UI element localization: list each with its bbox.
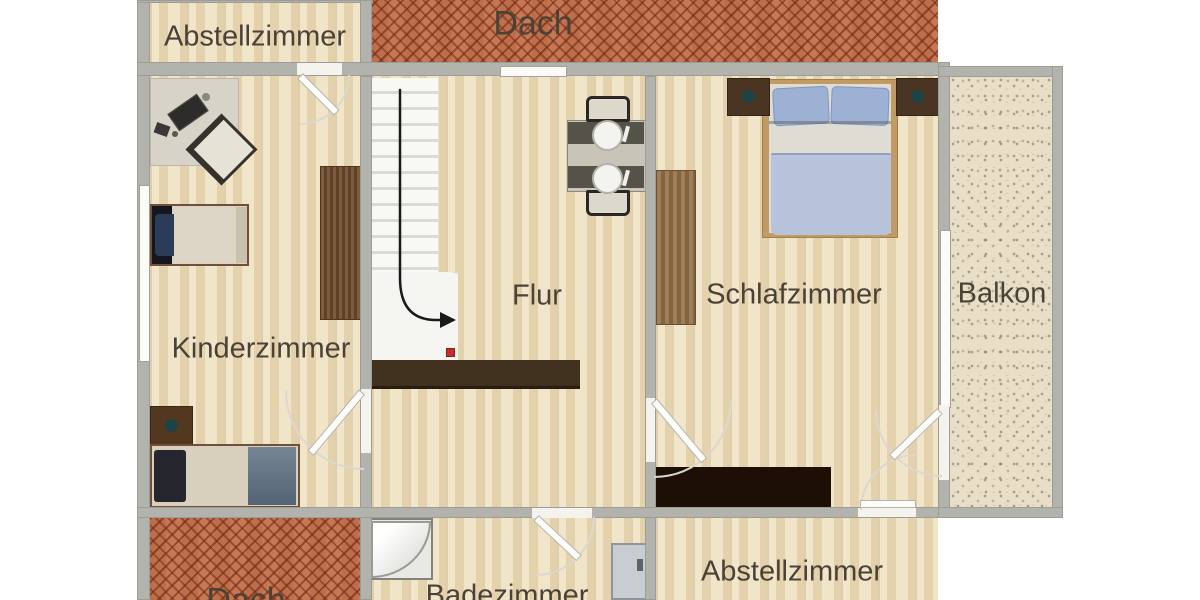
wardrobe-icon (320, 166, 362, 320)
room-label-abstellzimmer-top: Abstellzimmer (164, 21, 346, 54)
sideboard-icon (656, 467, 831, 508)
plate-icon (592, 120, 623, 151)
window (139, 185, 150, 362)
lamp-icon (155, 409, 187, 441)
sink-icon (611, 543, 649, 600)
window (940, 230, 951, 408)
lamp-icon (901, 80, 933, 112)
bed-blanket (174, 207, 236, 263)
room-label-dach-top: Dach (493, 5, 572, 44)
bed-pillow (830, 86, 889, 126)
wall (137, 0, 373, 3)
wardrobe-icon (656, 170, 696, 325)
shower-basin (371, 521, 431, 578)
room-label-abstellzimmer-bottom: Abstellzimmer (701, 556, 883, 589)
red-dot-marker (446, 348, 455, 357)
faucet (637, 559, 643, 571)
bed-blanket (771, 153, 891, 235)
wall (645, 76, 656, 600)
wall (1052, 66, 1063, 518)
room-label-schlafzimmer: Schlafzimmer (706, 279, 882, 312)
mouse-icon (202, 93, 210, 101)
desk-items-icon (172, 131, 178, 137)
room-label-kinderzimmer: Kinderzimmer (172, 333, 351, 366)
corner-shower-icon (368, 518, 433, 580)
room-label-dach-bottom: Dach (206, 582, 285, 600)
plate-icon (592, 163, 623, 194)
wall (360, 76, 372, 600)
room-label-badezimmer: Badezimmer (426, 580, 589, 600)
wall (938, 507, 1063, 518)
bed-foot (236, 207, 247, 263)
dining-chair-icon (586, 96, 630, 122)
child-bed-icon (150, 444, 300, 508)
floor-plan: Abstellzimmer Dach Kinderzimmer Flur Sch… (0, 0, 1200, 600)
roof-area-top (372, 0, 938, 62)
window (500, 66, 567, 77)
bed-blanket (248, 447, 296, 505)
sideboard-icon (372, 360, 580, 389)
room-label-balkon: Balkon (958, 278, 1047, 311)
lamp-icon (732, 80, 764, 112)
child-bed-icon (150, 204, 249, 266)
stair-direction-arrow (378, 82, 468, 362)
door-leaf (860, 500, 916, 508)
wall (938, 66, 1063, 77)
double-bed-icon (762, 79, 898, 238)
bed-pillow (154, 450, 186, 502)
bed-sheet-fold (769, 121, 891, 124)
room-label-flur: Flur (512, 280, 562, 313)
